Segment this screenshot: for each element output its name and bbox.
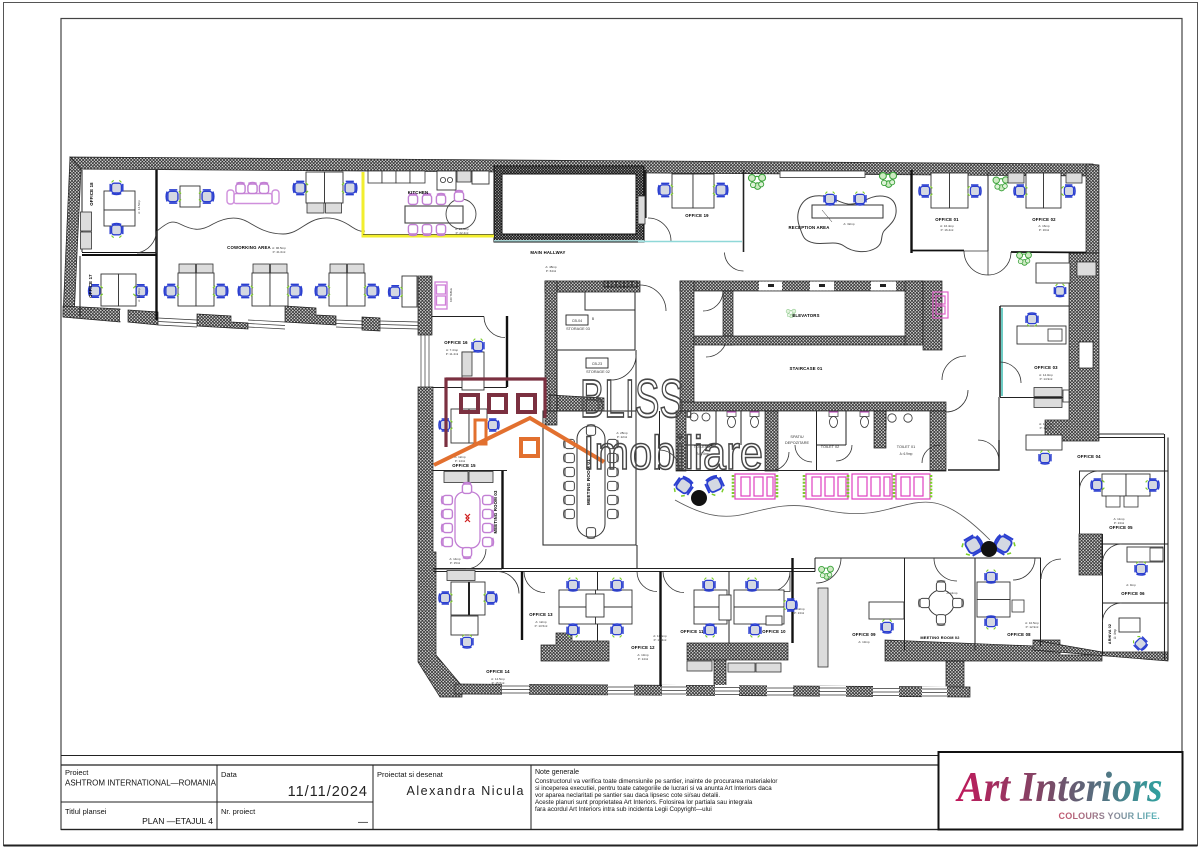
svg-text:OFFICE 08: OFFICE 08 [1007,632,1031,637]
svg-text:TOILET 02: TOILET 02 [821,445,839,449]
svg-text:fara acordul Art Interiors int: fara acordul Art Interiors intra sub inc… [535,806,712,813]
svg-text:A: 11mp: A: 11mp [947,591,958,595]
svg-text:Proiectat si desenat: Proiectat si desenat [377,770,444,779]
svg-text:P: 13ml: P: 13ml [794,611,805,615]
svg-text:RECEPTION AREA: RECEPTION AREA [788,225,829,230]
svg-text:DEPOZITARE: DEPOZITARE [785,441,809,445]
svg-text:P: 13ml: P: 13ml [1114,521,1125,525]
svg-text:P: 12.9ml: P: 12.9ml [1026,625,1039,629]
svg-text:OFFICE 11: OFFICE 11 [680,629,704,634]
svg-text:OFFICE 13: OFFICE 13 [529,612,553,617]
svg-text:Nr. proiect: Nr. proiect [221,807,256,816]
svg-text:P: 22.4ml: P: 22.4ml [456,231,469,235]
svg-text:OFFICE 10: OFFICE 10 [762,629,786,634]
svg-text:MAIN HALLWAY: MAIN HALLWAY [530,250,565,255]
svg-text:Art Interiors: Art Interiors [955,765,1163,811]
svg-text:P: 16.4ml: P: 16.4ml [941,228,954,232]
svg-text:A: 13.8mp: A: 13.8mp [137,288,141,302]
svg-text:P: 13.4ml: P: 13.4ml [654,638,667,642]
svg-text:P: 14ml: P: 14ml [455,459,466,463]
svg-text:Note generale: Note generale [535,769,579,776]
svg-text:MEETING ROOM 03: MEETING ROOM 03 [493,490,498,534]
svg-text:ARHIVA 02: ARHIVA 02 [1108,624,1112,644]
svg-text:OFFICE 17: OFFICE 17 [88,274,93,298]
svg-text:OFFICE 14: OFFICE 14 [486,669,510,674]
svg-text:OFFICE 05: OFFICE 05 [1109,525,1133,530]
svg-text:Constructorul va verifica toat: Constructorul va verifica toate dimensiu… [535,778,777,785]
svg-text:A: 6.9mp: A: 6.9mp [900,452,913,456]
svg-text:COLOURS YOUR LIFE.: COLOURS YOUR LIFE. [1059,811,1160,821]
svg-text:OFFICE 01: OFFICE 01 [935,217,959,222]
svg-text:STORAGE 03: STORAGE 03 [566,327,590,331]
svg-text:KID TABLE: KID TABLE [449,288,453,302]
svg-text:Titlul plansei: Titlul plansei [65,807,107,816]
svg-text:si inceperea executiei, pentru: si inceperea executiei, pentru toate cat… [535,785,772,792]
svg-text:P: 41.0ml: P: 41.0ml [273,250,286,254]
svg-text:PLAN —ETAJUL 4: PLAN —ETAJUL 4 [142,816,213,826]
svg-text:vor aparea neclaritati pe sant: vor aparea neclaritati pe santier sau da… [535,792,720,799]
svg-text:P: 15.5ml: P: 15.5ml [492,681,505,685]
svg-text:11/11/2024: 11/11/2024 [288,784,368,800]
svg-text:P: 16ml: P: 16ml [1039,228,1050,232]
svg-text:ELEVATORS: ELEVATORS [792,313,819,318]
svg-text:—: — [358,817,368,828]
svg-text:P: 15.0ml: P: 15.0ml [1040,426,1053,430]
svg-text:P: 14.9ml: P: 14.9ml [1040,377,1053,381]
svg-text:P: 14ml: P: 14ml [638,657,649,661]
svg-text:STAIRCASE 01: STAIRCASE 01 [790,366,823,371]
svg-text:P: 15ml: P: 15ml [450,561,461,565]
svg-text:MEETING ROOM 02: MEETING ROOM 02 [920,635,960,640]
svg-text:A: 13mp: A: 13mp [858,640,870,644]
svg-text:Data: Data [221,770,238,779]
svg-text:OFFICE 15: OFFICE 15 [452,463,476,468]
svg-text:OFFICE 06: OFFICE 06 [1121,591,1145,596]
svg-text:P: 64ml: P: 64ml [546,269,557,273]
svg-text:OFFICE 04: OFFICE 04 [1077,454,1101,459]
svg-text:CB-23: CB-23 [592,362,602,366]
svg-text:OFFICE 03: OFFICE 03 [1034,365,1058,370]
svg-text:OFFICE 09: OFFICE 09 [852,632,876,637]
svg-text:CB-04: CB-04 [572,319,582,323]
svg-text:OFFICE 19: OFFICE 19 [685,213,709,218]
svg-text:ASHTROM INTERNATIONAL—ROMANIA: ASHTROM INTERNATIONAL—ROMANIA [65,779,217,788]
svg-text:OFFICE 18: OFFICE 18 [89,182,94,206]
svg-text:TOILET 01: TOILET 01 [897,445,915,449]
svg-text:A: 14.5mp: A: 14.5mp [137,200,141,214]
svg-text:OFFICE 02: OFFICE 02 [1032,217,1056,222]
svg-text:P: 13.5ml: P: 13.5ml [535,624,548,628]
svg-text:A: 4mp: A: 4mp [1113,629,1117,639]
svg-text:A: 9mp: A: 9mp [1126,583,1136,587]
svg-text:OFFICE 16: OFFICE 16 [444,340,468,345]
svg-text:P: 11.4ml: P: 11.4ml [446,352,459,356]
svg-text:A: 32mp: A: 32mp [843,222,855,226]
svg-text:COWORKING AREA: COWORKING AREA [227,245,271,250]
svg-text:Imobiliare: Imobiliare [583,426,763,479]
svg-text:OFFICE 12: OFFICE 12 [631,645,655,650]
svg-text:Alexandra Nicula: Alexandra Nicula [407,784,526,798]
svg-text:SPATIU: SPATIU [790,435,803,439]
svg-text:Aceste planuri sunt proprietat: Aceste planuri sunt proprietatea Art Int… [535,799,753,806]
svg-text:Proiect: Proiect [65,768,89,777]
svg-text:BLISS.: BLISS. [580,369,694,429]
svg-text:KITCHEN: KITCHEN [408,190,429,195]
